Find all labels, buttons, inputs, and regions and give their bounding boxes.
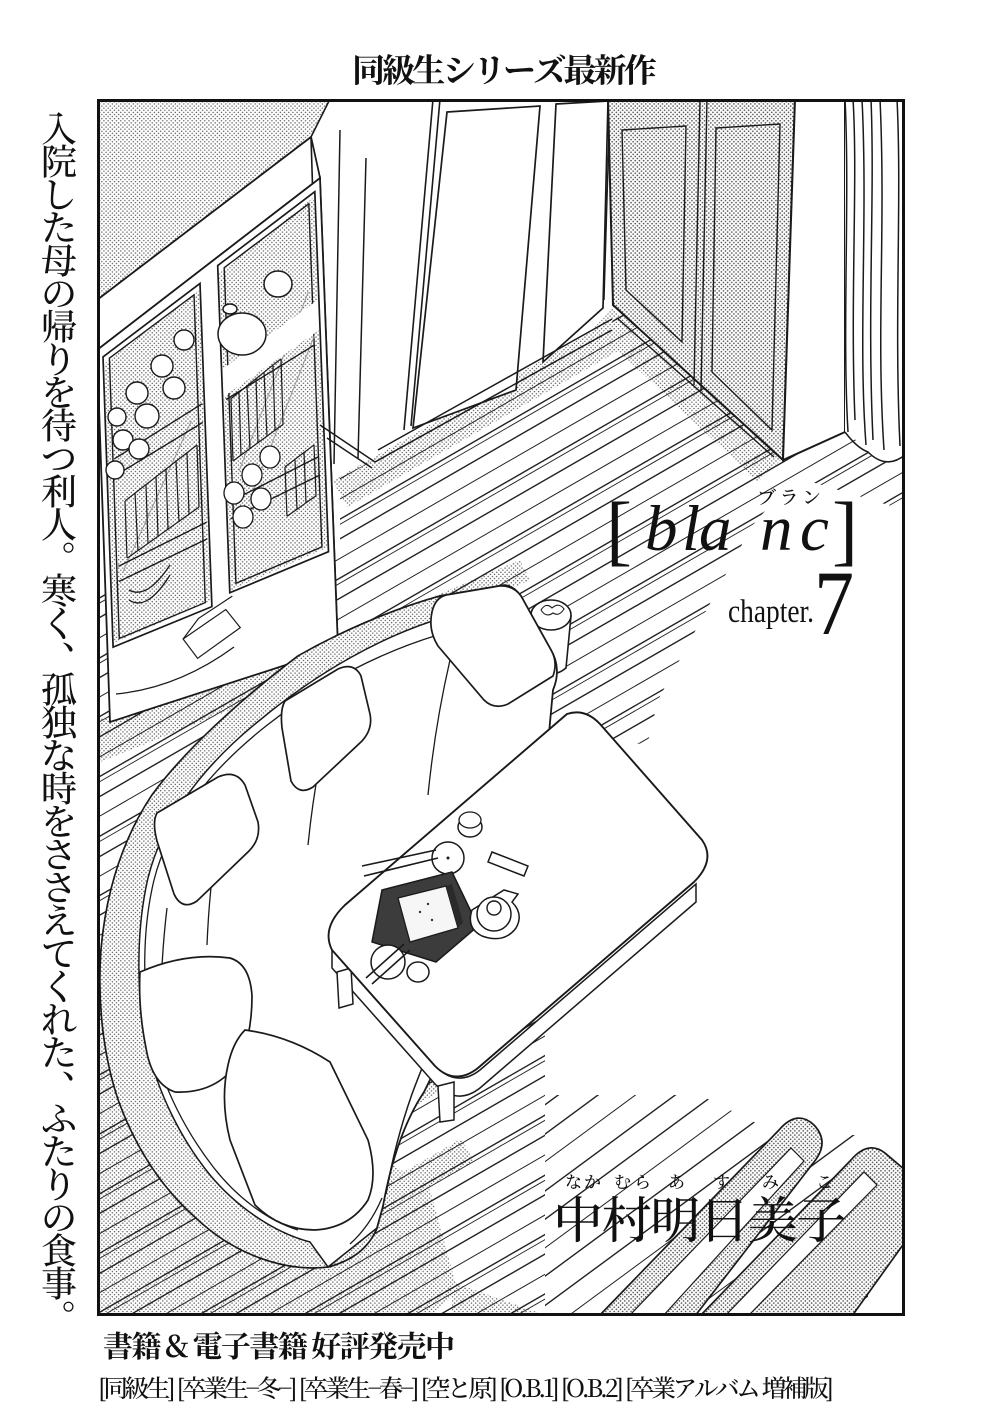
svg-text:b: b [645,493,678,565]
svg-text:n: n [760,493,793,565]
svg-text:chapter.: chapter. [728,594,814,630]
svg-text:7: 7 [814,552,854,654]
svg-text:[: [ [606,486,632,573]
svg-text:a: a [699,493,732,565]
svg-text:l: l [682,493,700,565]
